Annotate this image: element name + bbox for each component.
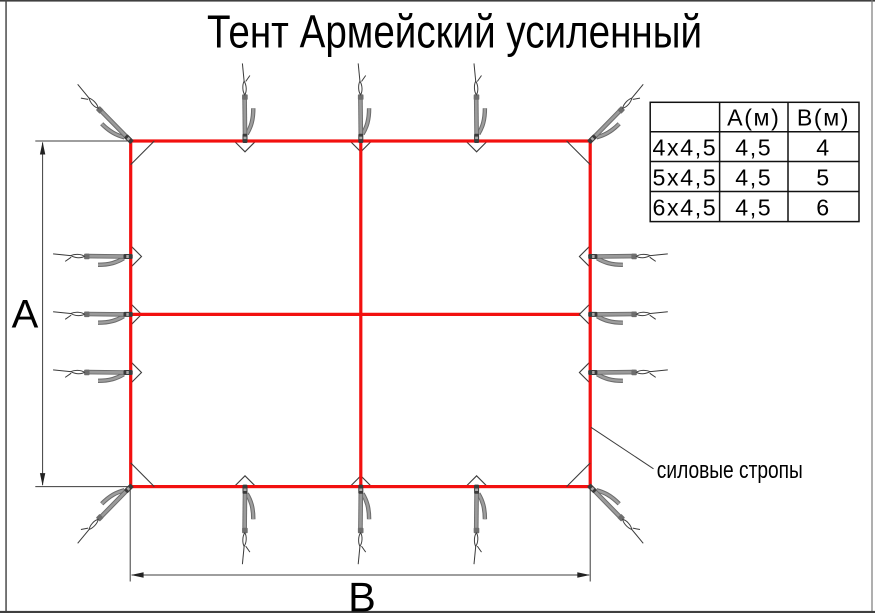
svg-text:4,5: 4,5: [735, 134, 772, 160]
svg-text:А(м): А(м): [727, 105, 780, 131]
svg-text:В(м): В(м): [797, 105, 850, 131]
svg-text:B: B: [348, 574, 376, 613]
svg-text:4: 4: [816, 134, 831, 160]
svg-text:Тент Армейский усиленный: Тент Армейский усиленный: [207, 5, 702, 57]
svg-text:6х4,5: 6х4,5: [653, 195, 718, 221]
svg-text:5х4,5: 5х4,5: [653, 164, 718, 190]
svg-text:4,5: 4,5: [735, 195, 772, 221]
svg-text:A: A: [12, 293, 39, 337]
svg-text:силовые стропы: силовые стропы: [657, 457, 803, 484]
svg-text:5: 5: [816, 164, 831, 190]
svg-text:4,5: 4,5: [735, 164, 772, 190]
svg-text:4х4,5: 4х4,5: [653, 134, 718, 160]
svg-text:6: 6: [816, 195, 831, 221]
